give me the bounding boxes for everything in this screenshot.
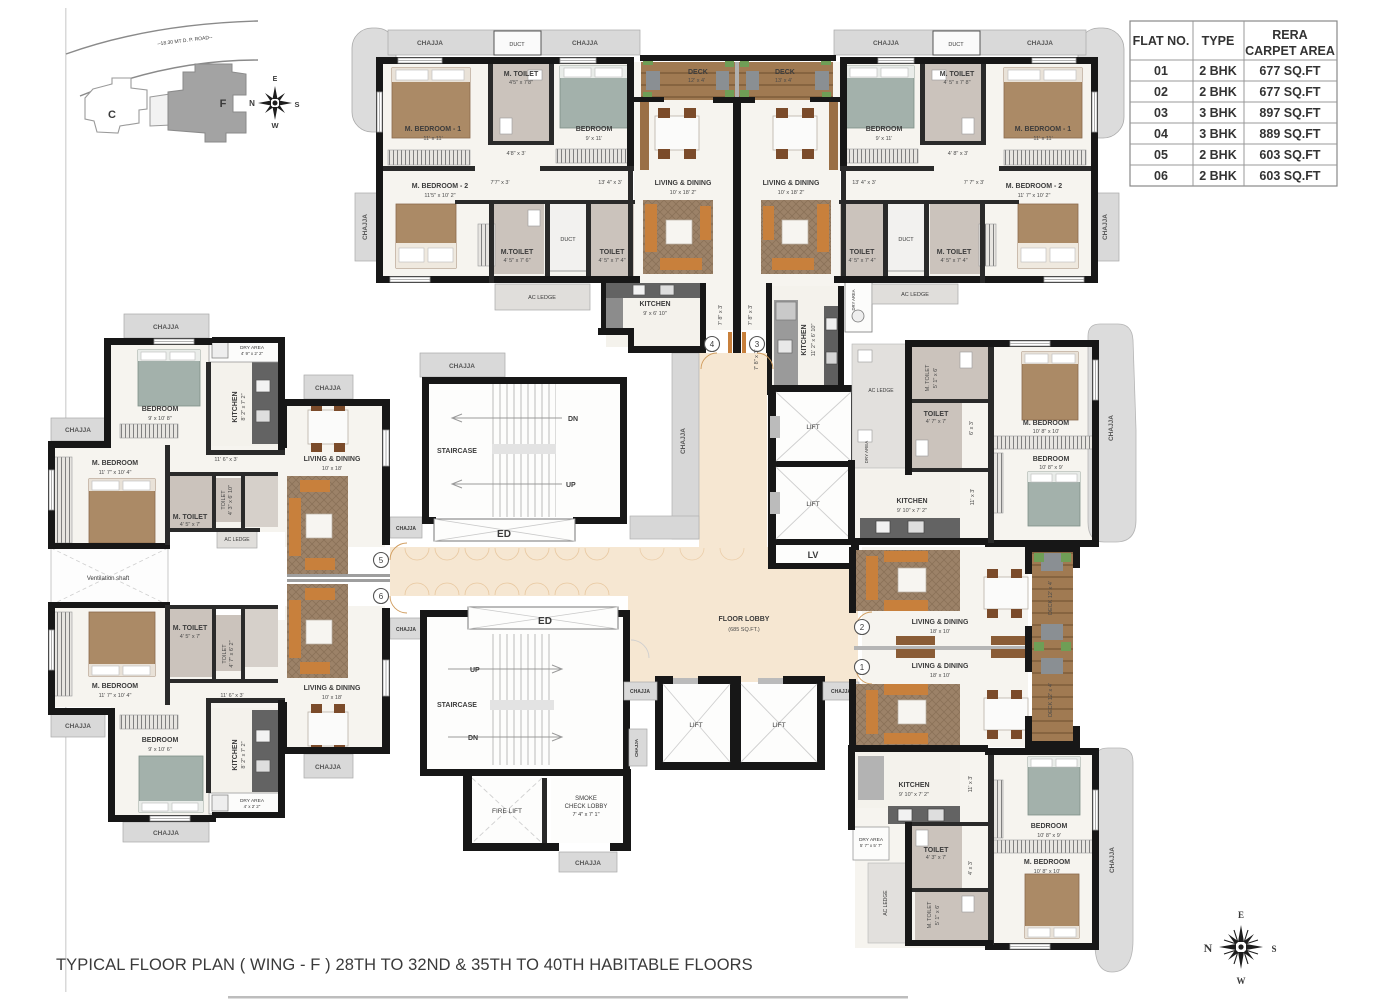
svg-text:7' 8" x 3': 7' 8" x 3' (748, 305, 754, 326)
svg-text:CHAJJA: CHAJJA (680, 428, 687, 454)
svg-text:7' 4" x 7' 1": 7' 4" x 7' 1" (572, 812, 599, 818)
svg-text:STAIRCASE: STAIRCASE (437, 702, 477, 709)
svg-text:DECK 12' x 4': DECK 12' x 4' (1048, 683, 1054, 717)
svg-text:CHAJJA: CHAJJA (65, 427, 91, 434)
svg-text:5' 7" x 5' 7": 5' 7" x 5' 7" (860, 843, 883, 848)
svg-text:06: 06 (1154, 169, 1168, 183)
svg-text:BEDROOM: BEDROOM (866, 126, 903, 133)
svg-text:CHAJJA: CHAJJA (575, 860, 601, 867)
svg-text:9' x 10' 6": 9' x 10' 6" (148, 747, 172, 753)
svg-text:LIFT: LIFT (806, 424, 819, 431)
svg-text:5' 1" x 6': 5' 1" x 6' (935, 905, 941, 926)
svg-text:11' 7" x 10' 2": 11' 7" x 10' 2" (1018, 193, 1051, 199)
svg-text:M. BEDROOM: M. BEDROOM (92, 683, 138, 690)
svg-text:4' 5" x 7' 4": 4' 5" x 7' 4" (598, 258, 625, 264)
svg-text:11' 6" x 3': 11' 6" x 3' (220, 693, 243, 699)
svg-text:M. TOILET: M. TOILET (940, 71, 975, 78)
svg-text:CHAJJA: CHAJJA (1102, 214, 1109, 240)
svg-text:AC LEDGE: AC LEDGE (868, 388, 894, 394)
svg-text:9' x 11': 9' x 11' (586, 136, 603, 142)
svg-text:03: 03 (1154, 106, 1168, 120)
svg-text:KITCHEN: KITCHEN (232, 391, 239, 422)
svg-text:DN: DN (468, 735, 478, 742)
svg-text:10' 8" x 10': 10' 8" x 10' (1034, 869, 1061, 875)
svg-text:DRY AREA: DRY AREA (851, 289, 856, 310)
svg-text:4' 3" x 7': 4' 3" x 7' (926, 855, 947, 861)
svg-text:8' 2" x 7' 2": 8' 2" x 7' 2" (241, 393, 247, 420)
svg-text:M. TOILET: M. TOILET (927, 901, 933, 928)
svg-text:ED: ED (538, 616, 552, 627)
svg-text:4' 7" x 7': 4' 7" x 7' (926, 419, 947, 425)
svg-text:KITCHEN: KITCHEN (801, 324, 808, 355)
svg-text:ED: ED (497, 529, 511, 540)
svg-text:KITCHEN: KITCHEN (639, 301, 670, 308)
svg-text:UP: UP (470, 667, 480, 674)
svg-text:KITCHEN: KITCHEN (232, 739, 239, 770)
svg-text:11'5" x 10' 2": 11'5" x 10' 2" (424, 193, 455, 199)
svg-text:889 SQ.FT: 889 SQ.FT (1259, 127, 1320, 141)
svg-text:DN: DN (568, 416, 578, 423)
svg-text:11' 2" x 6' 10": 11' 2" x 6' 10" (811, 324, 817, 357)
svg-text:UP: UP (566, 482, 576, 489)
svg-text:11' x 11': 11' x 11' (423, 136, 442, 142)
svg-text:CHAJJA: CHAJJA (449, 363, 475, 370)
svg-text:4' 9" x 2' 2": 4' 9" x 2' 2" (241, 351, 264, 356)
svg-text:2 BHK: 2 BHK (1199, 148, 1237, 162)
svg-text:4' 5" x 7' 6": 4' 5" x 7' 6" (503, 258, 530, 264)
svg-text:05: 05 (1154, 148, 1168, 162)
svg-text:BEDROOM: BEDROOM (1031, 823, 1068, 830)
svg-text:11' 7" x 10' 4": 11' 7" x 10' 4" (99, 470, 132, 476)
svg-text:10' 8" x 9': 10' 8" x 9' (1037, 833, 1061, 839)
svg-text:TOILET: TOILET (850, 249, 875, 256)
svg-text:N: N (1204, 941, 1213, 955)
svg-text:M. BEDROOM: M. BEDROOM (1024, 859, 1070, 866)
svg-text:M. TOILET: M. TOILET (173, 625, 208, 632)
svg-text:9' 10" x 7' 2": 9' 10" x 7' 2" (899, 792, 929, 798)
svg-text:2: 2 (860, 623, 865, 632)
svg-text:KITCHEN: KITCHEN (898, 782, 929, 789)
svg-text:LIVING & DINING: LIVING & DINING (763, 180, 820, 187)
svg-text:897 SQ.FT: 897 SQ.FT (1259, 106, 1320, 120)
svg-text:10' x 18' 2": 10' x 18' 2" (670, 190, 697, 196)
svg-text:CHAJJA: CHAJJA (1109, 847, 1116, 873)
svg-text:CHAJJA: CHAJJA (417, 40, 443, 47)
svg-text:TYPICAL FLOOR PLAN ( WING - F: TYPICAL FLOOR PLAN ( WING - F ) 28TH TO … (56, 956, 753, 974)
svg-text:W: W (1237, 976, 1246, 986)
svg-text:11' 7" x 10' 4": 11' 7" x 10' 4" (99, 693, 132, 699)
svg-text:677 SQ.FT: 677 SQ.FT (1259, 85, 1320, 99)
svg-text:4' x 2' 2": 4' x 2' 2" (244, 804, 261, 809)
svg-text:M.TOILET: M.TOILET (501, 249, 534, 256)
svg-text:18' x 10': 18' x 10' (930, 629, 950, 635)
svg-text:DRY AREA: DRY AREA (864, 441, 869, 464)
svg-text:E: E (1238, 910, 1244, 920)
svg-text:3: 3 (755, 340, 760, 349)
svg-text:CHAJJA: CHAJJA (873, 40, 899, 47)
svg-text:11' x 3': 11' x 3' (968, 776, 974, 793)
svg-text:4' x 3': 4' x 3' (968, 861, 974, 875)
svg-text:SMOKE: SMOKE (575, 796, 597, 802)
svg-text:BEDROOM: BEDROOM (1033, 456, 1070, 463)
svg-text:18' x 10': 18' x 10' (930, 673, 950, 679)
svg-text:FLOOR LOBBY: FLOOR LOBBY (719, 616, 770, 623)
svg-text:BEDROOM: BEDROOM (576, 126, 613, 133)
svg-text:11' x 11': 11' x 11' (1033, 136, 1052, 142)
svg-text:4'5" x 7'8": 4'5" x 7'8" (509, 80, 533, 86)
svg-text:M. BEDROOM - 1: M. BEDROOM - 1 (1015, 126, 1071, 133)
svg-text:4' 8" x 3': 4' 8" x 3' (948, 151, 969, 157)
svg-text:10' 8" x 9': 10' 8" x 9' (1039, 465, 1063, 471)
svg-text:10' 8" x 10': 10' 8" x 10' (1033, 429, 1060, 435)
svg-text:M. BEDROOM - 2: M. BEDROOM - 2 (1006, 183, 1062, 190)
svg-text:CHAJJA: CHAJJA (153, 830, 179, 837)
svg-text:TOILET: TOILET (924, 411, 949, 418)
svg-text:DUCT: DUCT (898, 237, 914, 243)
svg-text:CHAJJA: CHAJJA (634, 738, 639, 757)
svg-text:04: 04 (1154, 127, 1168, 141)
svg-text:DECK: DECK (775, 69, 795, 76)
svg-text:3 BHK: 3 BHK (1199, 127, 1237, 141)
svg-text:M. BEDROOM - 1: M. BEDROOM - 1 (405, 126, 461, 133)
svg-text:DUCT: DUCT (948, 42, 964, 48)
svg-text:E: E (273, 76, 278, 83)
svg-text:AC LEDGE: AC LEDGE (901, 292, 929, 298)
svg-text:AC LEDGE: AC LEDGE (528, 295, 556, 301)
svg-text:9' x 11': 9' x 11' (876, 136, 893, 142)
svg-text:LIFT: LIFT (806, 501, 819, 508)
svg-text:13' 4" x 3': 13' 4" x 3' (852, 180, 876, 186)
svg-text:M. TOILET: M. TOILET (937, 249, 972, 256)
svg-text:10' x 18': 10' x 18' (322, 466, 342, 472)
svg-text:7' 8" x 3': 7' 8" x 3' (718, 305, 724, 326)
svg-text:4' 5" x 7' 8": 4' 5" x 7' 8" (943, 80, 970, 86)
svg-text:CHAJJA: CHAJJA (1027, 40, 1053, 47)
svg-text:LIVING & DINING: LIVING & DINING (912, 619, 969, 626)
svg-text:CHECK LOBBY: CHECK LOBBY (565, 804, 608, 810)
svg-text:CHAJJA: CHAJJA (362, 214, 369, 240)
svg-text:2 BHK: 2 BHK (1199, 85, 1237, 99)
svg-text:10' x 18': 10' x 18' (322, 695, 342, 701)
svg-text:6' x 3': 6' x 3' (969, 421, 975, 435)
svg-text:DECK 12' x 4': DECK 12' x 4' (1048, 581, 1054, 615)
svg-text:2 BHK: 2 BHK (1199, 64, 1237, 78)
svg-text:AC LEDGE: AC LEDGE (883, 890, 889, 916)
svg-text:CHAJJA: CHAJJA (572, 40, 598, 47)
svg-text:W: W (271, 121, 279, 130)
svg-text:TYPE: TYPE (1202, 34, 1235, 48)
svg-text:DUCT: DUCT (509, 42, 525, 48)
svg-text:9' 10" x 7' 2": 9' 10" x 7' 2" (897, 508, 927, 514)
svg-text:3 BHK: 3 BHK (1199, 106, 1237, 120)
svg-text:5: 5 (379, 556, 384, 565)
svg-text:STAIRCASE: STAIRCASE (437, 448, 477, 455)
svg-text:9' x 10' 8": 9' x 10' 8" (148, 416, 172, 422)
svg-text:12' x 4': 12' x 4' (688, 78, 705, 84)
svg-text:7' 8" x 3': 7' 8" x 3' (754, 349, 760, 370)
svg-text:M. TOILET: M. TOILET (504, 71, 539, 78)
svg-text:KITCHEN: KITCHEN (896, 498, 927, 505)
svg-text:S: S (294, 100, 299, 109)
svg-text:5' 1" x 6': 5' 1" x 6' (933, 368, 939, 389)
svg-text:CHAJJA: CHAJJA (315, 764, 341, 771)
svg-text:LIVING & DINING: LIVING & DINING (912, 663, 969, 670)
svg-text:4' 5" x 7' 4": 4' 5" x 7' 4" (848, 258, 875, 264)
svg-text:4' 5" x 7' 4": 4' 5" x 7' 4" (940, 258, 967, 264)
svg-text:603 SQ.FT: 603 SQ.FT (1259, 169, 1320, 183)
svg-text:CARPET AREA: CARPET AREA (1245, 44, 1335, 58)
svg-text:(685 SQ.FT.): (685 SQ.FT.) (728, 627, 760, 633)
svg-text:N: N (249, 99, 255, 108)
svg-text:C: C (108, 109, 116, 121)
svg-text:S: S (1271, 944, 1276, 954)
svg-text:1: 1 (860, 663, 865, 672)
svg-text:FIRE LIFT: FIRE LIFT (492, 808, 522, 815)
svg-text:AC LEDGE: AC LEDGE (224, 537, 250, 543)
svg-text:DUCT: DUCT (560, 237, 576, 243)
svg-text:FLAT NO.: FLAT NO. (1133, 34, 1190, 48)
svg-text:6: 6 (379, 592, 384, 601)
svg-text:BEDROOM: BEDROOM (142, 406, 179, 413)
svg-text:CHAJJA: CHAJJA (65, 723, 91, 730)
svg-text:LIVING & DINING: LIVING & DINING (655, 180, 712, 187)
svg-text:4' 3" x 6' 10": 4' 3" x 6' 10" (228, 485, 234, 515)
svg-text:02: 02 (1154, 85, 1168, 99)
svg-text:CHAJJA: CHAJJA (396, 627, 416, 633)
svg-text:8' 2" x 7' 2": 8' 2" x 7' 2" (241, 741, 247, 768)
svg-text:BEDROOM: BEDROOM (142, 737, 179, 744)
svg-text:Ventilation shaft: Ventilation shaft (87, 576, 130, 582)
svg-text:677 SQ.FT: 677 SQ.FT (1259, 64, 1320, 78)
svg-text:LV: LV (808, 550, 819, 560)
svg-text:F: F (220, 98, 227, 110)
svg-text:13' 4" x 3': 13' 4" x 3' (598, 180, 622, 186)
svg-text:LIFT: LIFT (689, 722, 702, 729)
svg-text:DECK: DECK (688, 69, 708, 76)
svg-text:LIVING & DINING: LIVING & DINING (304, 456, 361, 463)
svg-text:13' x 4': 13' x 4' (775, 78, 792, 84)
svg-text:M. TOILET: M. TOILET (173, 514, 208, 521)
svg-text:4: 4 (710, 340, 715, 349)
svg-text:11' 6" x 3': 11' 6" x 3' (214, 457, 237, 463)
svg-text:CHAJJA: CHAJJA (396, 526, 416, 532)
svg-text:2 BHK: 2 BHK (1199, 169, 1237, 183)
svg-text:4' 7" x 6' 2": 4' 7" x 6' 2" (229, 640, 235, 667)
svg-text:TOILET: TOILET (221, 490, 227, 510)
svg-text:RERA: RERA (1272, 28, 1307, 42)
svg-text:10' x 18' 2": 10' x 18' 2" (778, 190, 805, 196)
svg-text:TOILET: TOILET (924, 847, 949, 854)
svg-text:01: 01 (1154, 64, 1168, 78)
svg-text:CHAJJA: CHAJJA (831, 689, 851, 695)
svg-text:7'7" x 3': 7'7" x 3' (490, 180, 509, 186)
svg-text:TOILET: TOILET (222, 644, 228, 664)
svg-text:CHAJJA: CHAJJA (153, 324, 179, 331)
svg-text:CHAJJA: CHAJJA (630, 689, 650, 695)
svg-text:7' 7" x 3': 7' 7" x 3' (964, 180, 985, 186)
svg-text:603 SQ.FT: 603 SQ.FT (1259, 148, 1320, 162)
svg-text:CHAJJA: CHAJJA (1108, 415, 1115, 441)
svg-text:CHAJJA: CHAJJA (315, 385, 341, 392)
svg-text:9' x 6' 10": 9' x 6' 10" (643, 311, 667, 317)
svg-text:LIFT: LIFT (772, 722, 785, 729)
svg-text:M. BEDROOM: M. BEDROOM (92, 460, 138, 467)
svg-text:4' 5" x 7': 4' 5" x 7' (180, 522, 201, 528)
svg-text:11' x 3': 11' x 3' (970, 489, 976, 506)
svg-text:M. BEDROOM: M. BEDROOM (1023, 420, 1069, 427)
svg-text:4'8" x 3': 4'8" x 3' (506, 151, 525, 157)
svg-text:M. TOILET: M. TOILET (925, 364, 931, 391)
svg-text:TOILET: TOILET (600, 249, 625, 256)
svg-text:M. BEDROOM - 2: M. BEDROOM - 2 (412, 183, 468, 190)
svg-text:4' 5" x 7': 4' 5" x 7' (180, 634, 201, 640)
svg-text:LIVING & DINING: LIVING & DINING (304, 685, 361, 692)
